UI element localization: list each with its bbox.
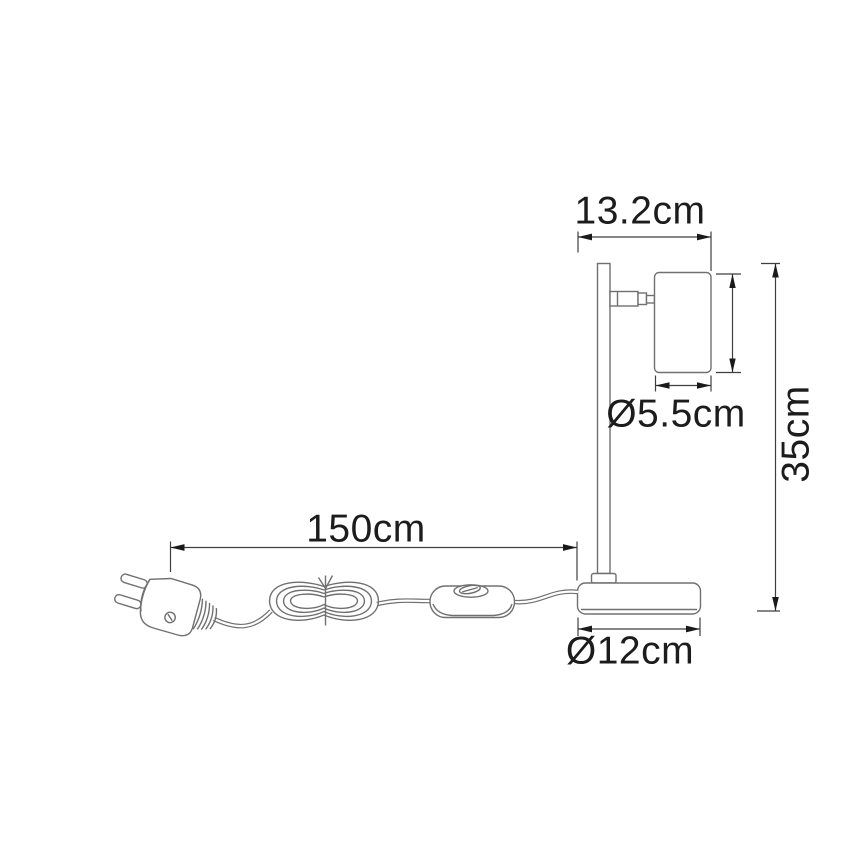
- arrow-down: [772, 597, 779, 611]
- arrow-left: [578, 234, 592, 241]
- arm-neck: [647, 296, 655, 304]
- power-plug: [110, 564, 223, 644]
- extension-tick: [716, 274, 741, 373]
- cable-coil: [270, 576, 379, 626]
- plug-pin: [120, 573, 148, 589]
- dim-label-top-width: 13.2cm: [575, 192, 706, 231]
- coil-loop: [284, 590, 365, 612]
- arrow-right: [563, 544, 577, 551]
- arrow-up: [729, 274, 735, 288]
- dim-label-base-diameter: Ø12cm: [566, 632, 694, 671]
- technical-drawing-canvas: 13.2cm Ø5.5cm 35cm 150cm Ø12cm: [0, 0, 868, 868]
- dim-label-head-diameter: Ø5.5cm: [606, 395, 746, 434]
- power-cable: [110, 564, 578, 644]
- spot-head: [655, 273, 712, 373]
- post-collar: [592, 574, 617, 584]
- table-lamp: [578, 264, 712, 615]
- arrow-up: [772, 264, 779, 278]
- dim-label-total-height: 35cm: [777, 385, 816, 482]
- inline-switch: [430, 584, 515, 618]
- arm-connector: [638, 293, 647, 305]
- arrow-down: [729, 359, 735, 373]
- dim-head-diameter: [656, 376, 712, 392]
- dim-head-length: [716, 274, 741, 373]
- swivel-arm: [610, 292, 655, 307]
- arm-body: [610, 292, 638, 307]
- arrow-right: [697, 234, 711, 241]
- dim-label-cable-length: 150cm: [306, 510, 426, 549]
- extension-line: [656, 376, 712, 392]
- arrow-right: [697, 382, 711, 389]
- arrow-left: [171, 544, 185, 551]
- arrow-left: [656, 382, 670, 389]
- coil-loop: [270, 582, 379, 620]
- coil-loop: [291, 594, 358, 608]
- plug-pin: [114, 594, 142, 610]
